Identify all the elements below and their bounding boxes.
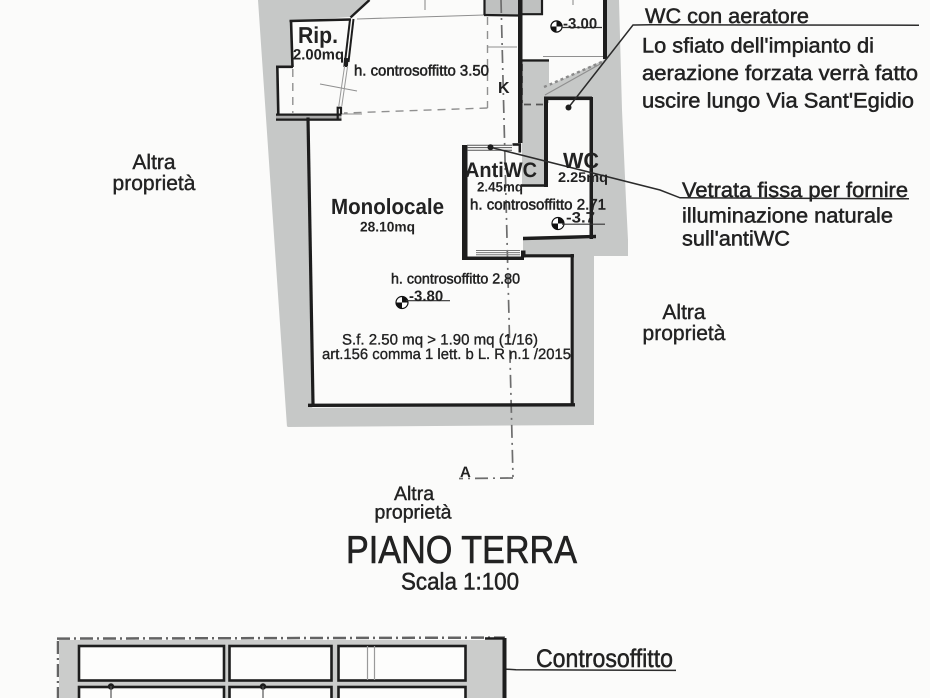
svg-text:28.10mq: 28.10mq — [360, 219, 415, 235]
svg-text:2.25mq: 2.25mq — [558, 169, 608, 185]
svg-text:h. controsoffitto 2.80: h. controsoffitto 2.80 — [391, 272, 520, 288]
svg-text:Controsoffitto: Controsoffitto — [536, 645, 673, 673]
svg-text:aerazione forzata verrà fatto: aerazione forzata verrà fatto — [642, 62, 918, 85]
svg-text:-3.00: -3.00 — [563, 16, 597, 33]
svg-text:2.00mq: 2.00mq — [293, 47, 344, 64]
svg-text:proprietà: proprietà — [113, 172, 196, 195]
svg-text:A: A — [460, 464, 471, 481]
svg-text:WC con aeratore: WC con aeratore — [645, 5, 809, 28]
svg-text:Lo sfiato dell'impianto di: Lo sfiato dell'impianto di — [642, 35, 874, 58]
svg-text:h. controsoffitto 3.50: h. controsoffitto 3.50 — [354, 63, 489, 80]
svg-text:Rip.: Rip. — [298, 22, 338, 48]
svg-text:-3.80: -3.80 — [409, 288, 443, 305]
svg-text:proprietà: proprietà — [643, 322, 726, 345]
svg-text:sull'antiWC: sull'antiWC — [682, 228, 790, 251]
svg-text:2.45mq: 2.45mq — [477, 180, 523, 195]
svg-text:-3.7: -3.7 — [566, 210, 595, 227]
svg-text:art.156 comma 1 lett. b L. R n: art.156 comma 1 lett. b L. R n.1 /2015 — [322, 346, 571, 363]
svg-text:illuminazione naturale: illuminazione naturale — [682, 205, 893, 228]
svg-text:Vetrata fissa per fornire: Vetrata fissa per fornire — [682, 179, 908, 202]
svg-text:Scala 1:100: Scala 1:100 — [401, 569, 519, 596]
svg-text:Monolocale: Monolocale — [331, 194, 444, 219]
svg-text:Altra: Altra — [132, 151, 176, 174]
svg-text:proprietà: proprietà — [375, 502, 452, 524]
svg-text:PIANO TERRA: PIANO TERRA — [346, 529, 577, 572]
svg-text:Altra: Altra — [662, 301, 706, 324]
svg-text:uscire lungo Via Sant'Egidio: uscire lungo Via Sant'Egidio — [642, 90, 914, 113]
svg-text:K: K — [498, 80, 510, 97]
